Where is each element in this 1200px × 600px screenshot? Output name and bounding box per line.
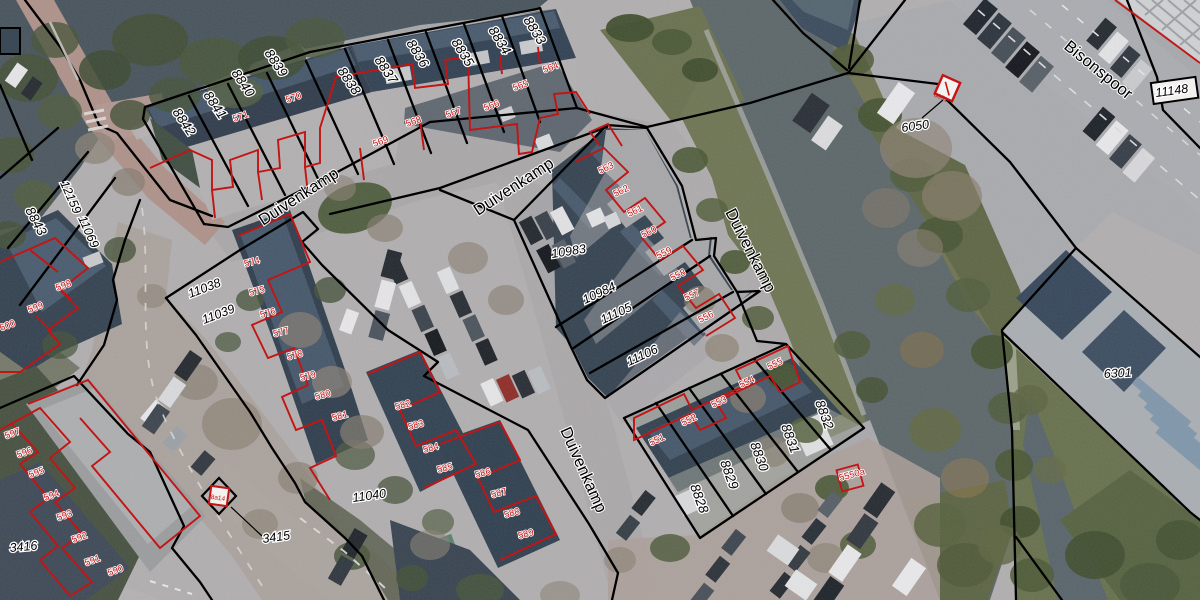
svg-text:6301: 6301 (1103, 366, 1132, 381)
svg-text:3416: 3416 (9, 539, 38, 555)
